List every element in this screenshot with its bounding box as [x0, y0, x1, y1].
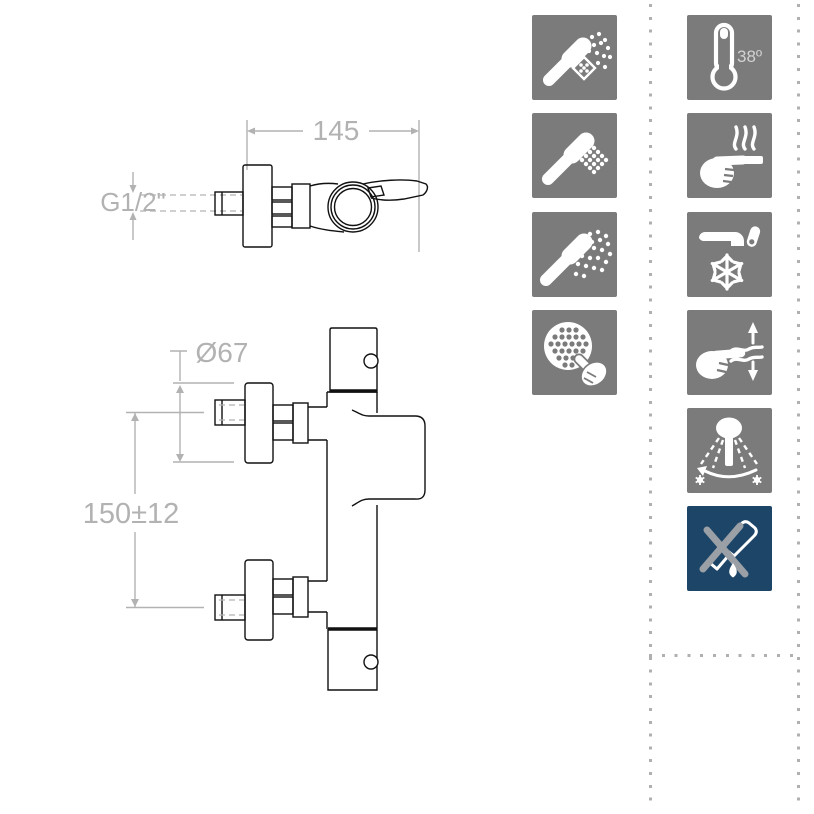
dim-distance-label: 150±12	[83, 498, 180, 530]
temperature-label: 38º	[737, 47, 762, 66]
dotted-separator-bottom	[649, 654, 800, 657]
dim-diameter-label: Ø67	[196, 337, 249, 368]
anti-drip-icon	[687, 506, 772, 591]
top-view	[215, 165, 427, 247]
front-view	[215, 328, 425, 690]
handshower-massage-spray-icon	[532, 15, 617, 100]
dimension-150: 150±12	[83, 413, 204, 608]
dotted-separator-right	[797, 4, 800, 810]
dotted-separator-left	[649, 4, 652, 810]
product-spec-sheet: 145 G1/2"	[0, 0, 814, 814]
adjustable-spray-angle-icon	[687, 408, 772, 493]
thermostat-38-degrees-icon: 38º	[687, 15, 772, 100]
cool-touch-body-icon	[687, 113, 772, 198]
cold-start-icon	[687, 212, 772, 297]
easy-clean-nozzles-icon	[532, 310, 617, 395]
dim-thread-label: G1/2"	[100, 187, 166, 217]
handshower-rain-spray-icon	[532, 113, 617, 198]
dim-width-label: 145	[313, 115, 360, 146]
flow-control-icon	[687, 310, 772, 395]
dimension-g12: G1/2"	[100, 172, 242, 240]
handshower-wide-spray-icon	[532, 212, 617, 297]
